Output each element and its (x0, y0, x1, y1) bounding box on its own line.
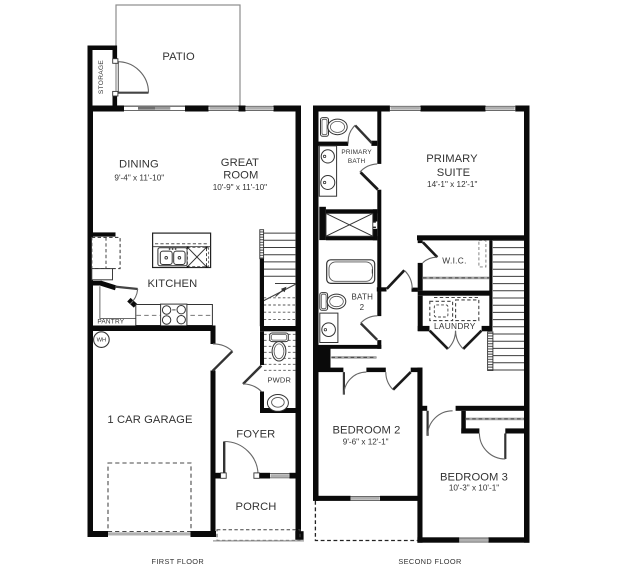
svg-text:FOYER: FOYER (236, 428, 275, 440)
svg-text:PORCH: PORCH (236, 501, 277, 513)
svg-text:BEDROOM 2: BEDROOM 2 (332, 425, 400, 437)
svg-text:9'-4" x 11'-10": 9'-4" x 11'-10" (114, 173, 164, 182)
svg-text:DINING: DINING (119, 159, 159, 171)
svg-text:ROOM: ROOM (223, 169, 258, 181)
svg-text:10'-3" x 10'-1": 10'-3" x 10'-1" (449, 484, 499, 493)
svg-text:PANTRY: PANTRY (97, 318, 124, 325)
svg-text:BATH: BATH (352, 292, 374, 301)
svg-text:LAUNDRY: LAUNDRY (434, 321, 476, 331)
svg-text:W.I.C.: W.I.C. (442, 255, 466, 265)
svg-text:PRIMARY: PRIMARY (426, 153, 478, 165)
svg-text:2: 2 (360, 303, 365, 312)
svg-text:9'-6" x 12'-1": 9'-6" x 12'-1" (343, 438, 389, 447)
svg-text:SECOND FLOOR: SECOND FLOOR (398, 557, 461, 566)
svg-text:KITCHEN: KITCHEN (147, 278, 197, 290)
svg-text:1 CAR GARAGE: 1 CAR GARAGE (107, 414, 192, 426)
svg-text:FIRST FLOOR: FIRST FLOOR (152, 557, 205, 566)
svg-text:PATIO: PATIO (162, 51, 195, 63)
svg-text:GREAT: GREAT (221, 157, 259, 169)
svg-text:STORAGE: STORAGE (98, 60, 105, 95)
svg-text:PWDR: PWDR (267, 375, 291, 384)
svg-text:PRIMARY: PRIMARY (341, 149, 372, 156)
svg-text:14'-1" x 12'-1": 14'-1" x 12'-1" (427, 180, 477, 189)
svg-text:WH: WH (97, 338, 107, 344)
svg-text:BATH: BATH (348, 158, 366, 165)
svg-text:BEDROOM 3: BEDROOM 3 (440, 471, 508, 483)
svg-text:10'-9" x 11'-10": 10'-9" x 11'-10" (213, 183, 267, 192)
svg-text:SUITE: SUITE (437, 167, 470, 179)
